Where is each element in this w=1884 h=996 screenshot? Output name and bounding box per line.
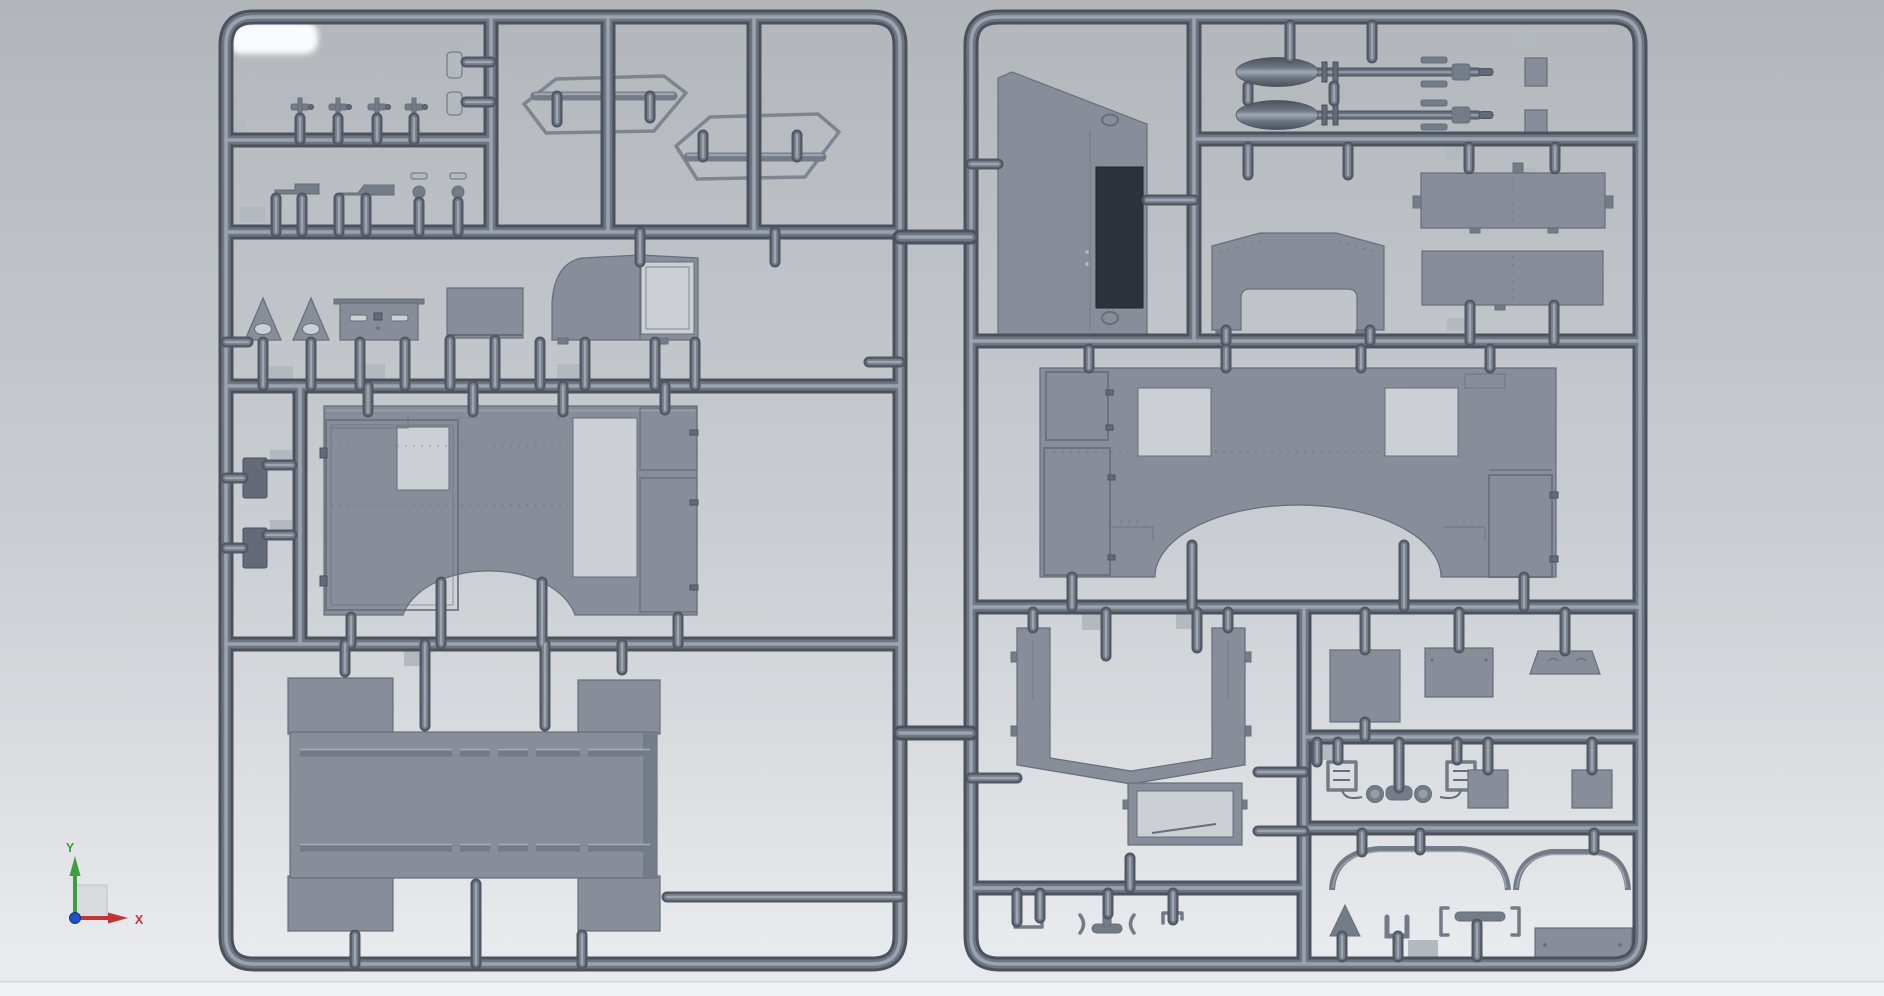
roof-panel-part-2[interactable] — [1422, 251, 1603, 310]
flat-panel-part[interactable] — [447, 288, 523, 338]
x-axis-label: X — [135, 913, 144, 927]
render-canvas: Y X — [0, 0, 1884, 996]
cad-viewport: Y X — [0, 0, 1884, 996]
floor-strip — [0, 982, 1884, 996]
hatch-panel-part[interactable] — [334, 299, 424, 340]
base-plate-part[interactable] — [1535, 928, 1632, 961]
z-axis-origin-dot — [70, 913, 81, 924]
viewport-background — [0, 0, 1884, 996]
cab-side-panel-part[interactable] — [552, 255, 698, 344]
plane-indicator — [75, 885, 107, 917]
equipment-box-part-1[interactable] — [1330, 650, 1400, 722]
window-frame-part[interactable] — [1123, 783, 1247, 845]
lid-box-part-1[interactable] — [1468, 770, 1508, 808]
roof-panel-part-1[interactable] — [1413, 163, 1613, 233]
y-axis-label: Y — [66, 841, 75, 855]
lid-box-part-2[interactable] — [1572, 770, 1612, 808]
equipment-box-part-2[interactable] — [1425, 648, 1493, 697]
small-box-part-1[interactable] — [1525, 58, 1547, 86]
